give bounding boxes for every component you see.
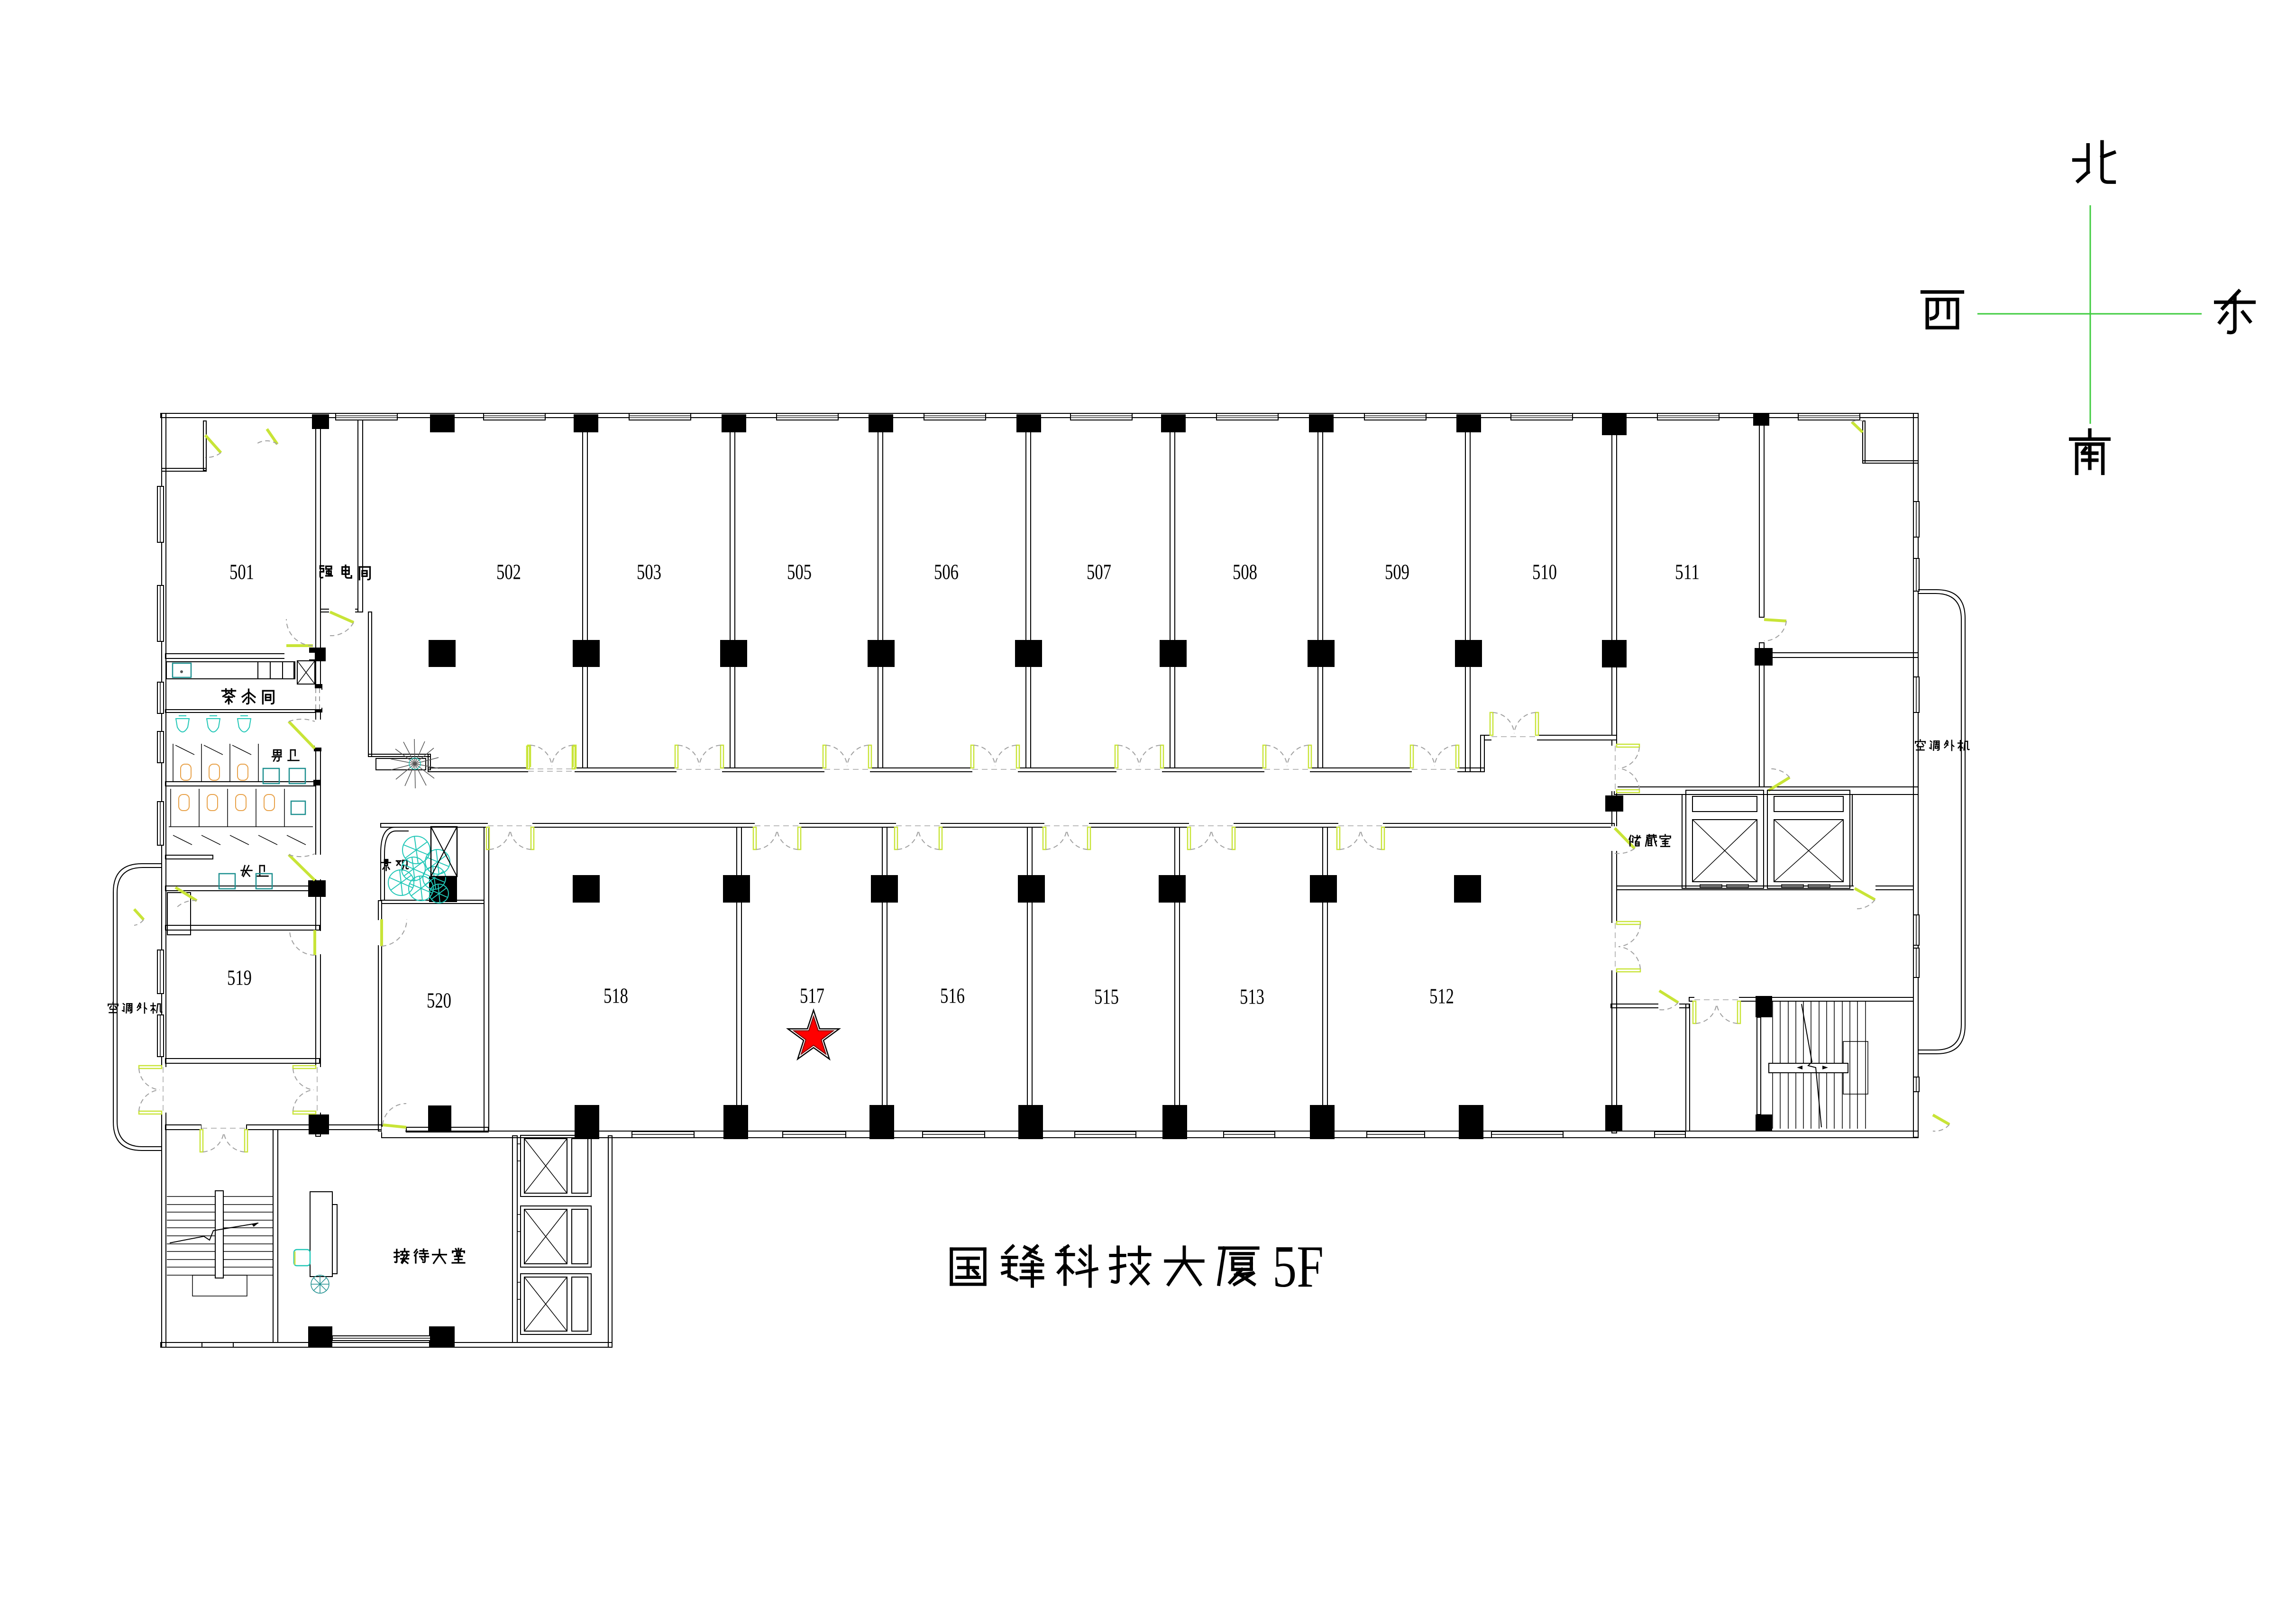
svg-text:503: 503 (637, 560, 661, 584)
svg-text:5F: 5F (1272, 1234, 1324, 1300)
svg-text:512: 512 (1429, 984, 1454, 1008)
svg-text:509: 509 (1385, 560, 1409, 584)
svg-text:507: 507 (1087, 560, 1111, 584)
svg-text:511: 511 (1675, 560, 1700, 584)
svg-text:506: 506 (934, 560, 959, 584)
svg-text:505: 505 (787, 560, 812, 584)
svg-text:516: 516 (940, 984, 965, 1008)
svg-text:501: 501 (229, 560, 254, 584)
svg-text:520: 520 (427, 988, 451, 1013)
svg-text:502: 502 (496, 560, 521, 584)
svg-text:519: 519 (227, 966, 252, 990)
svg-text:515: 515 (1094, 985, 1119, 1009)
svg-text:513: 513 (1240, 985, 1264, 1009)
svg-text:508: 508 (1233, 560, 1257, 584)
svg-text:518: 518 (604, 984, 628, 1008)
svg-text:517: 517 (800, 984, 824, 1008)
svg-text:510: 510 (1532, 560, 1557, 584)
